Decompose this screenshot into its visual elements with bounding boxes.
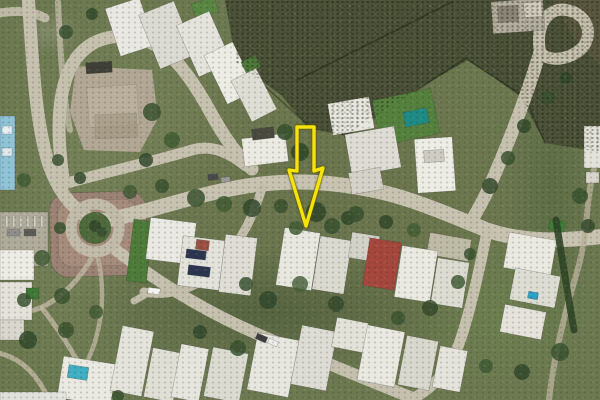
annotation-layer — [0, 0, 600, 400]
location-arrow-halo — [289, 127, 323, 226]
satellite-photo — [0, 0, 600, 400]
